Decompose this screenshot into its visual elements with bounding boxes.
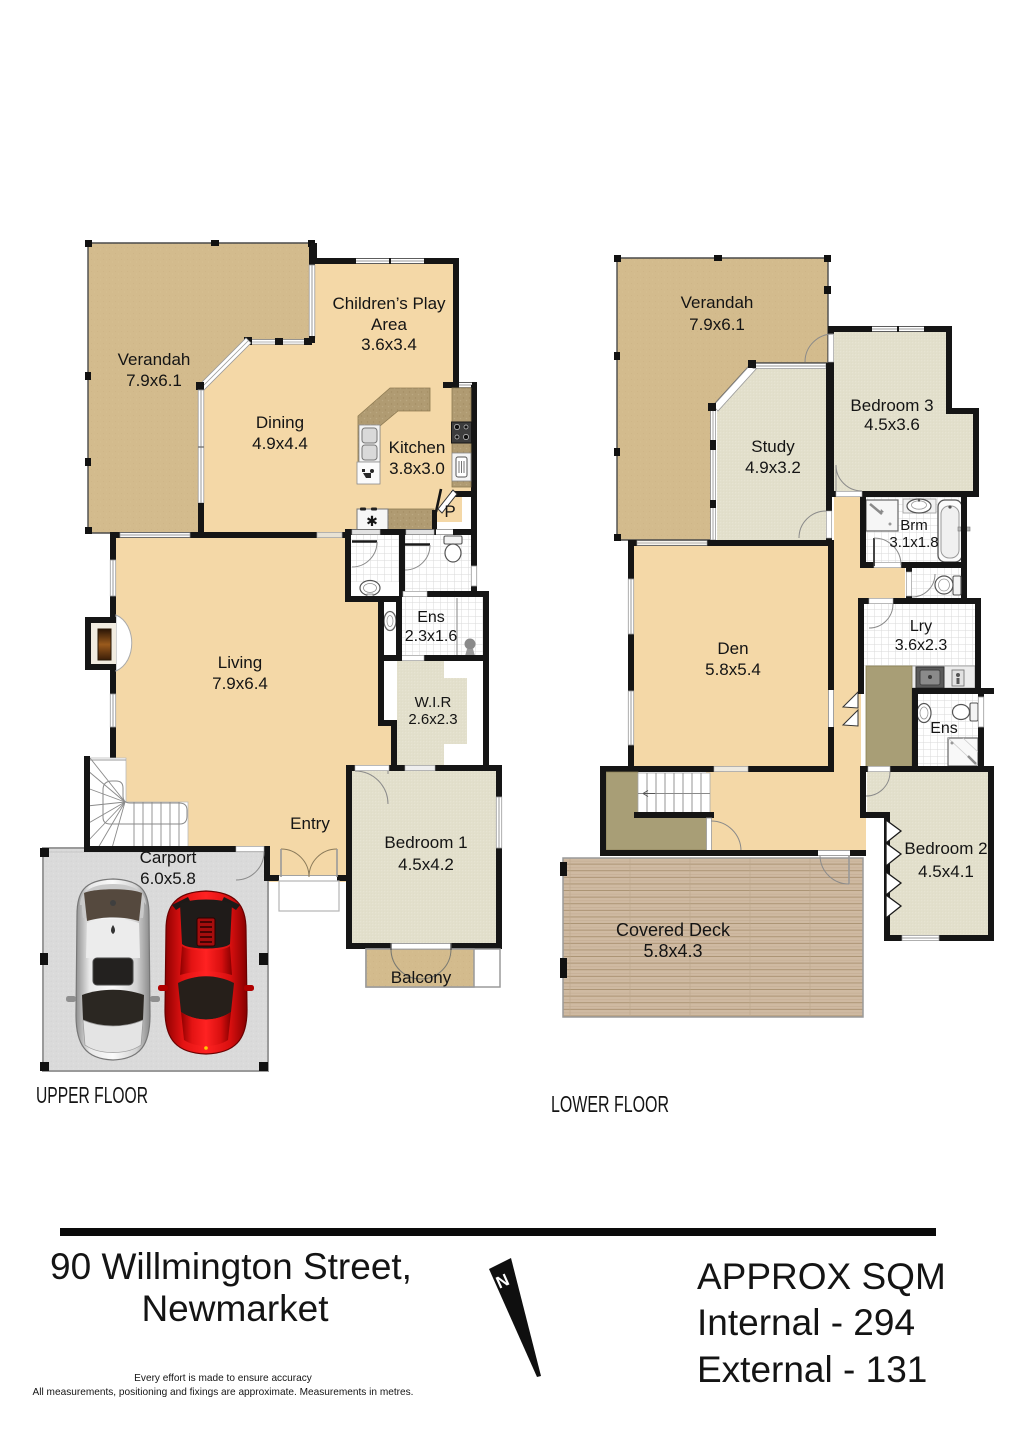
svg-text:Every effort is made to ensure: Every effort is made to ensure accuracy [134, 1373, 313, 1384]
svg-text:Dining: Dining [256, 413, 304, 432]
svg-text:P: P [444, 502, 455, 521]
svg-text:5.8x5.4: 5.8x5.4 [705, 660, 761, 679]
svg-text:Bedroom 3: Bedroom 3 [850, 396, 933, 415]
svg-text:Area: Area [371, 315, 407, 334]
svg-text:LOWER FLOOR: LOWER FLOOR [551, 1091, 669, 1117]
svg-text:Verandah: Verandah [681, 293, 754, 312]
svg-text:4.5x3.6: 4.5x3.6 [864, 415, 920, 434]
svg-text:External - 131: External - 131 [697, 1349, 927, 1390]
svg-text:Bedroom 1: Bedroom 1 [384, 833, 467, 852]
svg-text:2.6x2.3: 2.6x2.3 [408, 711, 457, 728]
svg-text:3.6x2.3: 3.6x2.3 [895, 637, 948, 654]
svg-text:W.I.R: W.I.R [415, 694, 452, 711]
svg-text:Children’s Play: Children’s Play [332, 294, 446, 313]
svg-text:All measurements, positioning: All measurements, positioning and fixing… [33, 1387, 414, 1398]
svg-text:Verandah: Verandah [118, 350, 191, 369]
svg-text:Covered Deck: Covered Deck [616, 920, 731, 940]
svg-text:90 Willmington Street,: 90 Willmington Street, [50, 1246, 412, 1287]
svg-text:6.0x5.8: 6.0x5.8 [140, 869, 196, 888]
svg-text:Brm: Brm [900, 517, 928, 534]
svg-text:Ens: Ens [417, 609, 445, 626]
svg-text:APPROX SQM: APPROX SQM [697, 1256, 946, 1297]
svg-text:Lry: Lry [910, 618, 932, 635]
svg-text:UPPER FLOOR: UPPER FLOOR [36, 1082, 148, 1108]
svg-text:✱: ✱ [366, 513, 378, 529]
svg-text:Ens: Ens [930, 720, 958, 737]
svg-text:4.9x4.4: 4.9x4.4 [252, 434, 308, 453]
svg-text:4.5x4.1: 4.5x4.1 [918, 862, 974, 881]
svg-text:Balcony: Balcony [391, 968, 452, 987]
svg-text:Carport: Carport [140, 848, 197, 867]
svg-text:7.9x6.4: 7.9x6.4 [212, 674, 268, 693]
svg-text:2.3x1.6: 2.3x1.6 [405, 628, 458, 645]
svg-text:3.8x3.0: 3.8x3.0 [389, 459, 445, 478]
svg-text:Living: Living [218, 653, 262, 672]
svg-text:Internal - 294: Internal - 294 [697, 1302, 915, 1343]
svg-text:Bedroom 2: Bedroom 2 [904, 839, 987, 858]
svg-text:Newmarket: Newmarket [141, 1288, 329, 1329]
svg-text:4.9x3.2: 4.9x3.2 [745, 458, 801, 477]
svg-text:Entry: Entry [290, 814, 330, 833]
svg-text:7.9x6.1: 7.9x6.1 [126, 371, 182, 390]
svg-text:5.8x4.3: 5.8x4.3 [643, 941, 702, 961]
svg-text:Den: Den [717, 639, 748, 658]
svg-text:4.5x4.2: 4.5x4.2 [398, 855, 454, 874]
svg-text:3.1x1.8: 3.1x1.8 [889, 534, 938, 551]
svg-text:Kitchen: Kitchen [389, 438, 446, 457]
svg-text:3.6x3.4: 3.6x3.4 [361, 335, 417, 354]
svg-text:Study: Study [751, 437, 795, 456]
svg-text:7.9x6.1: 7.9x6.1 [689, 315, 745, 334]
